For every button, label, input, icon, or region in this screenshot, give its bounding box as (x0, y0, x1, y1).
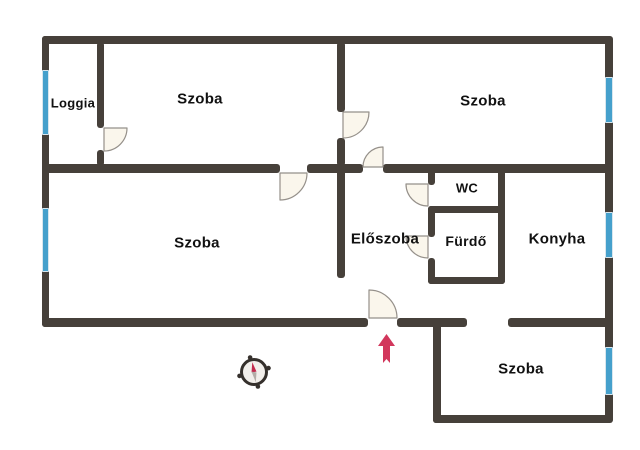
label-wc: WC (456, 181, 478, 196)
door-arc-szoba-top-left (280, 173, 307, 200)
label-loggia: Loggia (51, 96, 95, 111)
door-arc-loggia (104, 128, 127, 151)
wall-mid-center (307, 164, 363, 173)
window-szoba-main (42, 208, 49, 272)
label-szoba-top-right: Szoba (460, 93, 506, 110)
wall-bottom-center (397, 318, 467, 327)
label-konyha: Konyha (529, 231, 586, 248)
wall-bottomroom-bottom (433, 415, 612, 423)
wall-top (42, 36, 612, 44)
compass-needle-north (252, 362, 257, 372)
window-loggia (42, 70, 49, 135)
compass-tick-n (248, 355, 253, 360)
wall-loggia-divider-upper (97, 42, 104, 128)
wall-bottom-left (42, 318, 368, 327)
wall-eloszoba-left (337, 170, 345, 278)
wall-wc-left-b (428, 206, 435, 237)
wall-furdo-bottom (428, 277, 505, 284)
compass-tick-w (237, 374, 242, 379)
wall-wc-left-a (428, 170, 435, 185)
wall-furdo-left-c (428, 258, 435, 284)
floorplan: Loggia Szoba Szoba Szoba Előszoba WC Für… (0, 0, 640, 450)
doors-layer (0, 0, 640, 450)
wall-bottom-right (508, 318, 612, 327)
door-arc-wc (406, 184, 428, 206)
label-eloszoba: Előszoba (351, 231, 419, 248)
wall-center-upper-b (337, 138, 345, 166)
compass-tick-s (256, 384, 261, 389)
wall-wc-furdo-divider (428, 206, 505, 213)
window-konyha (605, 212, 613, 258)
wall-bottomroom-left (433, 318, 441, 423)
wall-loggia-divider-lower (97, 150, 104, 166)
label-szoba-main: Szoba (174, 235, 220, 252)
door-arc-szoba-top-right (363, 147, 383, 167)
compass-tick-e (266, 366, 271, 371)
window-szoba-top-right (605, 77, 613, 123)
wall-center-upper-a (337, 42, 345, 112)
wall-mid-left (42, 164, 280, 173)
label-furdo: Fürdő (445, 233, 486, 249)
label-szoba-bottom: Szoba (498, 361, 544, 378)
entrance-arrow-icon (374, 333, 399, 365)
compass-ring (242, 360, 267, 385)
door-arc-between-top-rooms (343, 112, 369, 138)
compass-needle-south (252, 372, 257, 383)
window-szoba-bottom (605, 347, 613, 395)
label-szoba-top-left: Szoba (177, 91, 223, 108)
wall-wc-furdo-right (498, 170, 505, 284)
door-arc-entrance (369, 290, 397, 318)
compass-icon (235, 354, 273, 392)
